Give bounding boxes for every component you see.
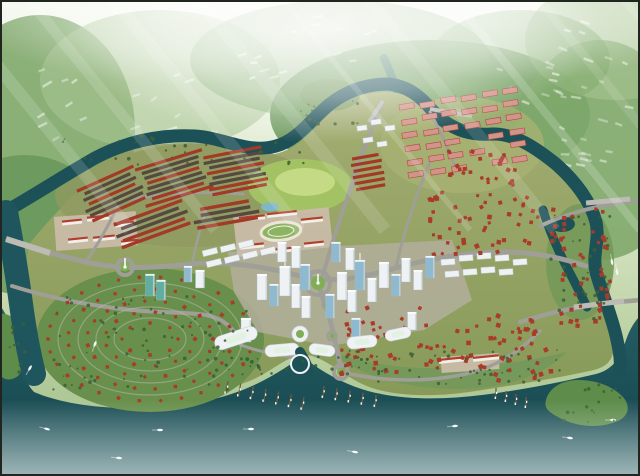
villa-roof	[559, 321, 563, 325]
villa-roof	[466, 341, 471, 346]
tree	[301, 360, 304, 363]
highrise-tower	[368, 278, 377, 302]
tree	[555, 359, 557, 361]
tree	[418, 376, 420, 378]
tree	[152, 138, 156, 142]
villa-roof	[591, 230, 595, 234]
tree	[123, 378, 125, 380]
tree	[564, 273, 567, 276]
moored-boat	[265, 394, 266, 396]
tower-roof	[392, 274, 401, 276]
villa-roof	[467, 216, 472, 221]
villa-roof	[370, 321, 375, 326]
highrise-tower	[196, 270, 205, 288]
tree	[480, 369, 482, 371]
tree	[377, 380, 380, 383]
highrise-tower	[146, 274, 155, 296]
tree	[13, 344, 15, 346]
tree	[345, 355, 348, 358]
bottom-haze	[0, 400, 640, 476]
tower-shade-face	[355, 290, 357, 312]
tree	[510, 354, 513, 357]
tree	[606, 283, 609, 286]
tree	[595, 290, 599, 294]
tower-shade-face	[421, 270, 423, 290]
villa-roof	[458, 167, 462, 171]
highrise-tower	[157, 280, 166, 300]
villa-roof	[429, 346, 433, 350]
tree	[115, 332, 117, 334]
tree	[587, 387, 591, 391]
slab-body	[513, 259, 527, 266]
villa-roof	[431, 210, 435, 214]
tree	[469, 370, 472, 373]
tree	[131, 328, 134, 331]
villa-roof	[561, 278, 565, 282]
moored-boat	[278, 396, 279, 398]
tree	[143, 297, 145, 299]
tree	[212, 374, 216, 378]
tower-roof	[332, 242, 341, 244]
tree	[240, 357, 243, 360]
tree	[460, 377, 462, 379]
tree	[587, 272, 589, 274]
highrise-tower	[352, 318, 361, 338]
villa-roof	[507, 212, 512, 217]
villa-roof	[105, 365, 109, 369]
tree	[344, 365, 346, 367]
distant-building-trace	[561, 153, 569, 156]
tree	[503, 355, 506, 358]
tree	[147, 349, 150, 352]
villa-roof	[562, 216, 566, 220]
tower-roof	[346, 248, 355, 250]
highrise-tower	[326, 294, 335, 318]
tree	[274, 141, 277, 144]
tree	[185, 295, 188, 298]
villa-roof	[484, 201, 487, 204]
tree	[18, 365, 20, 367]
highrise-tower	[348, 290, 357, 312]
tree	[437, 382, 440, 385]
tree	[600, 301, 602, 303]
villa-roof	[198, 361, 201, 364]
tower-roof	[257, 274, 267, 276]
tree	[20, 363, 22, 365]
tree	[224, 339, 227, 342]
villa-roof	[468, 170, 472, 174]
tree	[128, 303, 130, 305]
tree	[232, 330, 235, 333]
villa-roof	[424, 362, 429, 367]
tree	[599, 216, 601, 218]
tower-shade-face	[353, 248, 355, 270]
villa-roof	[529, 318, 533, 322]
moored-boat	[227, 386, 228, 388]
tower-shade-face	[164, 280, 166, 300]
tree	[211, 159, 213, 161]
tree	[314, 364, 317, 367]
tree	[156, 365, 159, 368]
tower-shade-face	[308, 264, 310, 290]
tree	[584, 388, 587, 391]
tree	[208, 383, 211, 386]
villa-roof	[174, 315, 177, 318]
villa-roof	[428, 217, 432, 221]
marina-lagoon	[291, 355, 309, 373]
moored-boat	[516, 398, 517, 400]
tower-roof	[414, 270, 423, 272]
tree	[17, 342, 20, 345]
moored-boat	[324, 390, 325, 392]
tree	[186, 162, 189, 165]
tree	[90, 375, 93, 378]
tree	[245, 357, 249, 361]
highrise-tower	[414, 270, 423, 290]
tower-shade-face	[345, 272, 347, 300]
villa-roof	[173, 385, 177, 389]
tree	[245, 310, 248, 313]
tower-shade-face	[339, 242, 341, 262]
tree	[537, 379, 540, 382]
tree	[580, 305, 582, 307]
tower-roof	[184, 266, 192, 268]
villa-roof	[217, 383, 220, 386]
tower-shade-face	[309, 296, 311, 318]
tree	[261, 373, 263, 375]
tree	[553, 238, 556, 241]
tree	[150, 308, 153, 311]
tree	[488, 369, 490, 371]
tree	[181, 325, 184, 328]
tree	[593, 294, 596, 297]
tree	[137, 163, 139, 165]
tower-shade-face	[190, 266, 192, 282]
tower-roof	[348, 290, 357, 292]
tree	[411, 355, 413, 357]
tower-shade-face	[399, 274, 401, 296]
tree	[577, 215, 580, 218]
tree	[69, 365, 71, 367]
tree	[270, 372, 273, 375]
tree	[126, 385, 129, 388]
tree	[562, 265, 565, 268]
tree	[223, 351, 225, 353]
tree	[597, 383, 600, 386]
villa-roof	[241, 312, 245, 316]
tree	[76, 368, 78, 370]
tree	[602, 390, 605, 393]
villa-roof	[220, 361, 224, 365]
villa-roof	[601, 210, 605, 214]
slab-body	[495, 255, 509, 262]
tree	[208, 333, 212, 337]
tower-roof	[355, 260, 365, 262]
tree	[381, 370, 383, 372]
tree	[256, 364, 259, 367]
tower-roof	[402, 258, 411, 260]
tree	[398, 358, 400, 360]
tree	[445, 383, 447, 385]
tree	[492, 351, 495, 354]
highrise-tower	[270, 284, 279, 306]
tree	[204, 331, 207, 334]
slab-body	[463, 269, 477, 276]
monument-base	[123, 265, 126, 268]
tree	[443, 350, 446, 353]
villa-roof	[572, 263, 577, 268]
tower-body	[280, 266, 291, 296]
tree	[226, 388, 229, 391]
tree	[90, 159, 92, 161]
tree	[473, 370, 475, 372]
tree	[107, 336, 110, 339]
villa-roof	[96, 376, 100, 380]
villa-roof	[483, 226, 487, 230]
midrise-slab	[441, 259, 455, 266]
tree	[88, 380, 92, 384]
villa-roof	[347, 333, 351, 337]
tree	[212, 346, 214, 348]
tree	[168, 355, 170, 357]
villa-roof	[446, 241, 450, 245]
tower-roof	[426, 256, 435, 258]
tower-shade-face	[415, 312, 417, 330]
tree	[447, 354, 451, 358]
tree	[469, 354, 471, 356]
tree	[11, 325, 15, 329]
tower-roof	[379, 262, 389, 264]
tree	[601, 286, 603, 288]
tree	[325, 373, 327, 375]
villa-roof	[148, 353, 152, 357]
tree	[59, 335, 61, 337]
monument-base	[316, 281, 319, 284]
villa-roof	[454, 252, 458, 256]
villa-roof	[522, 202, 525, 205]
slab-body	[377, 141, 388, 147]
villa-roof	[486, 181, 490, 185]
tree	[216, 345, 220, 349]
tower-roof	[157, 280, 166, 282]
tower-shade-face	[375, 278, 377, 302]
tower-roof	[270, 284, 279, 286]
tower-shade-face	[285, 242, 287, 262]
tower-roof	[352, 318, 361, 320]
tree	[571, 216, 574, 219]
tree	[562, 298, 565, 301]
villa-roof	[394, 370, 398, 374]
villa-roof	[527, 241, 532, 246]
tree	[606, 237, 608, 239]
tree	[250, 360, 254, 364]
tree	[506, 357, 509, 360]
villa-roof	[180, 278, 183, 281]
villa-roof	[168, 326, 171, 329]
tree	[70, 301, 73, 304]
tree	[142, 344, 145, 347]
moored-boat	[350, 395, 351, 397]
tree	[52, 388, 54, 390]
tree	[210, 310, 213, 313]
tree	[330, 367, 333, 370]
tree	[284, 368, 287, 371]
tree	[163, 335, 166, 338]
tree	[217, 321, 221, 325]
tree	[249, 365, 251, 367]
tree	[412, 353, 414, 355]
tree	[615, 388, 617, 390]
tree	[63, 375, 65, 377]
villa-roof	[153, 387, 157, 391]
villa-roof	[448, 173, 453, 178]
tower-shade-face	[203, 270, 205, 288]
highrise-tower	[402, 258, 411, 282]
moored-boat	[335, 398, 336, 400]
tree	[355, 351, 357, 353]
highrise-tower	[292, 246, 301, 268]
villa-roof	[432, 233, 435, 236]
tree	[199, 325, 201, 327]
tree	[101, 321, 104, 324]
highrise-tower	[346, 248, 355, 270]
tree	[579, 239, 582, 242]
villa-roof	[518, 330, 522, 334]
tree	[611, 390, 613, 392]
villa-roof	[575, 323, 580, 328]
midrise-slab	[459, 255, 473, 262]
tree	[194, 318, 196, 320]
tree	[606, 244, 609, 247]
tree	[228, 369, 230, 371]
tree	[519, 375, 521, 377]
tower-roof	[300, 264, 310, 266]
moored-boat	[495, 397, 496, 399]
villa-roof	[174, 290, 177, 293]
villa-roof	[478, 251, 482, 255]
villa-roof	[373, 361, 378, 366]
villa-roof	[163, 374, 167, 378]
villa-roof	[425, 345, 429, 349]
tree	[183, 375, 186, 378]
highrise-tower	[379, 262, 389, 288]
tree	[549, 257, 552, 260]
tree	[190, 322, 192, 324]
tree	[214, 357, 218, 361]
tree	[434, 355, 436, 357]
tree	[478, 379, 481, 382]
tower-roof	[278, 242, 287, 244]
tree	[113, 328, 116, 331]
tree	[11, 331, 14, 334]
tree	[366, 358, 368, 360]
villa-roof	[132, 312, 135, 315]
slab-body	[459, 255, 473, 262]
tree	[337, 356, 340, 359]
villa-roof	[554, 235, 558, 239]
tree	[171, 336, 173, 338]
tree	[22, 323, 25, 326]
highrise-tower	[392, 274, 401, 296]
tree	[140, 374, 143, 377]
tree	[78, 386, 81, 389]
tree	[99, 319, 102, 322]
tree	[384, 368, 387, 371]
tree	[56, 312, 58, 314]
tower-shade-face	[363, 260, 365, 290]
moored-boat	[322, 396, 323, 398]
tree	[127, 157, 131, 161]
villa-roof	[488, 336, 493, 341]
tree	[69, 299, 71, 301]
moored-boat	[250, 397, 251, 399]
tree	[608, 215, 611, 218]
villa-roof	[478, 157, 482, 161]
tree	[206, 359, 209, 362]
villa-roof	[199, 391, 202, 394]
tree	[574, 263, 576, 265]
tree	[593, 248, 597, 252]
highrise-tower	[426, 256, 435, 278]
tree	[558, 309, 562, 313]
highrise-tower	[184, 266, 192, 282]
villa-roof	[174, 360, 177, 363]
slab-body	[499, 269, 513, 276]
tree	[53, 358, 56, 361]
tower-shade-face	[359, 318, 361, 338]
tree	[187, 368, 189, 370]
tower-roof	[241, 318, 251, 320]
moored-boat	[363, 397, 364, 399]
villa-roof	[437, 357, 442, 362]
tree	[572, 240, 574, 242]
scene-canvas	[0, 0, 640, 476]
highrise-tower	[300, 264, 310, 290]
villa-roof	[340, 348, 344, 352]
tree	[156, 361, 160, 365]
tree	[408, 369, 411, 372]
tree	[302, 162, 304, 164]
tree	[602, 302, 605, 305]
roundabout-green	[330, 334, 335, 339]
tree	[142, 328, 146, 332]
villa-roof	[80, 291, 84, 295]
villa-roof	[463, 167, 467, 171]
tree	[259, 150, 262, 153]
tree	[122, 298, 124, 300]
slab-body	[441, 259, 455, 266]
villa-roof	[502, 238, 506, 242]
slab-body	[481, 267, 495, 274]
tower-shade-face	[265, 274, 267, 300]
villa-roof	[487, 214, 492, 219]
moored-boat	[496, 392, 497, 394]
villa-roof	[113, 292, 117, 296]
tree	[583, 223, 585, 225]
tree	[23, 350, 27, 354]
tree	[9, 346, 11, 348]
villa-roof	[532, 332, 536, 336]
tree	[86, 352, 88, 354]
tree	[599, 318, 601, 320]
green-area	[275, 168, 335, 196]
tree	[554, 215, 556, 217]
villa-roof	[180, 396, 184, 400]
tree	[58, 363, 61, 366]
tree	[577, 301, 579, 303]
villa-roof	[457, 231, 461, 235]
tree	[349, 350, 351, 352]
